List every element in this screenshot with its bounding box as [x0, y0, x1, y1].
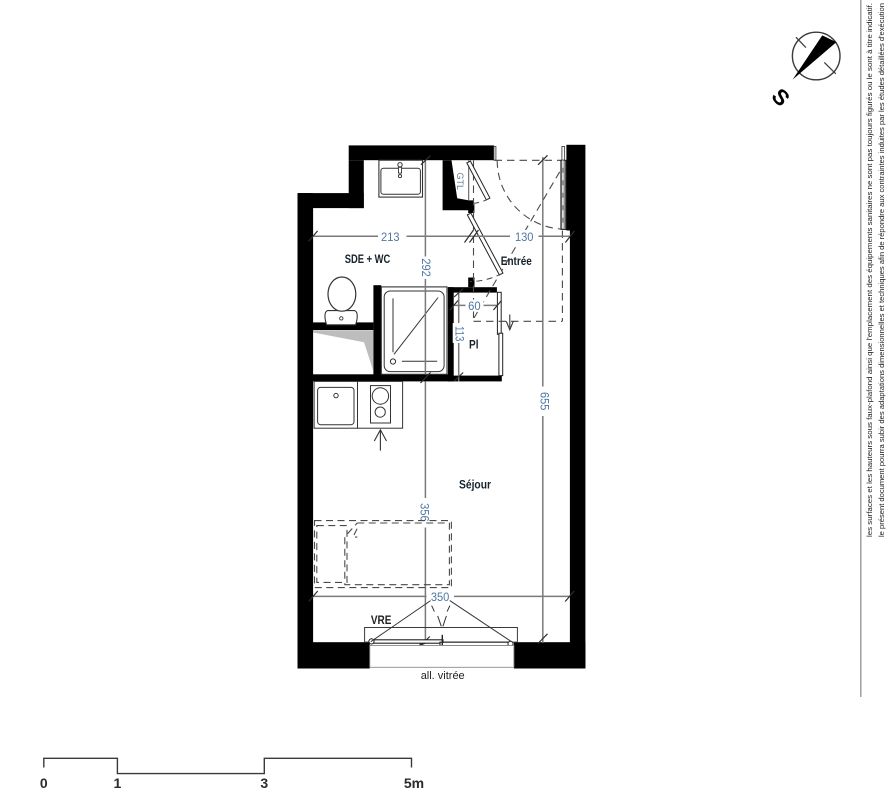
svg-text:113: 113: [453, 326, 465, 342]
svg-text:356: 356: [417, 503, 429, 522]
svg-text:3: 3: [260, 775, 268, 791]
svg-text:60: 60: [468, 301, 481, 313]
svg-text:130: 130: [515, 232, 534, 244]
svg-text:Séjour: Séjour: [459, 479, 491, 491]
svg-text:le présent document pourra sub: le présent document pourra subir des ada…: [877, 3, 886, 537]
svg-text:VRE: VRE: [371, 615, 392, 627]
svg-text:les surfaces et les hauteurs s: les surfaces et les hauteurs sous faux-p…: [865, 3, 874, 537]
svg-text:0: 0: [40, 775, 48, 791]
svg-text:655: 655: [538, 392, 550, 411]
svg-text:292: 292: [419, 258, 431, 277]
svg-text:350: 350: [431, 592, 450, 604]
svg-text:SDE + WC: SDE + WC: [345, 252, 391, 266]
svg-text:Pl: Pl: [469, 338, 479, 352]
svg-text:Entrée: Entrée: [501, 254, 532, 268]
svg-text:5m: 5m: [404, 775, 424, 791]
svg-text:1: 1: [114, 775, 122, 791]
svg-text:GTL: GTL: [455, 173, 465, 191]
svg-text:all. vitrée: all. vitrée: [421, 670, 465, 682]
svg-text:213: 213: [381, 232, 400, 244]
